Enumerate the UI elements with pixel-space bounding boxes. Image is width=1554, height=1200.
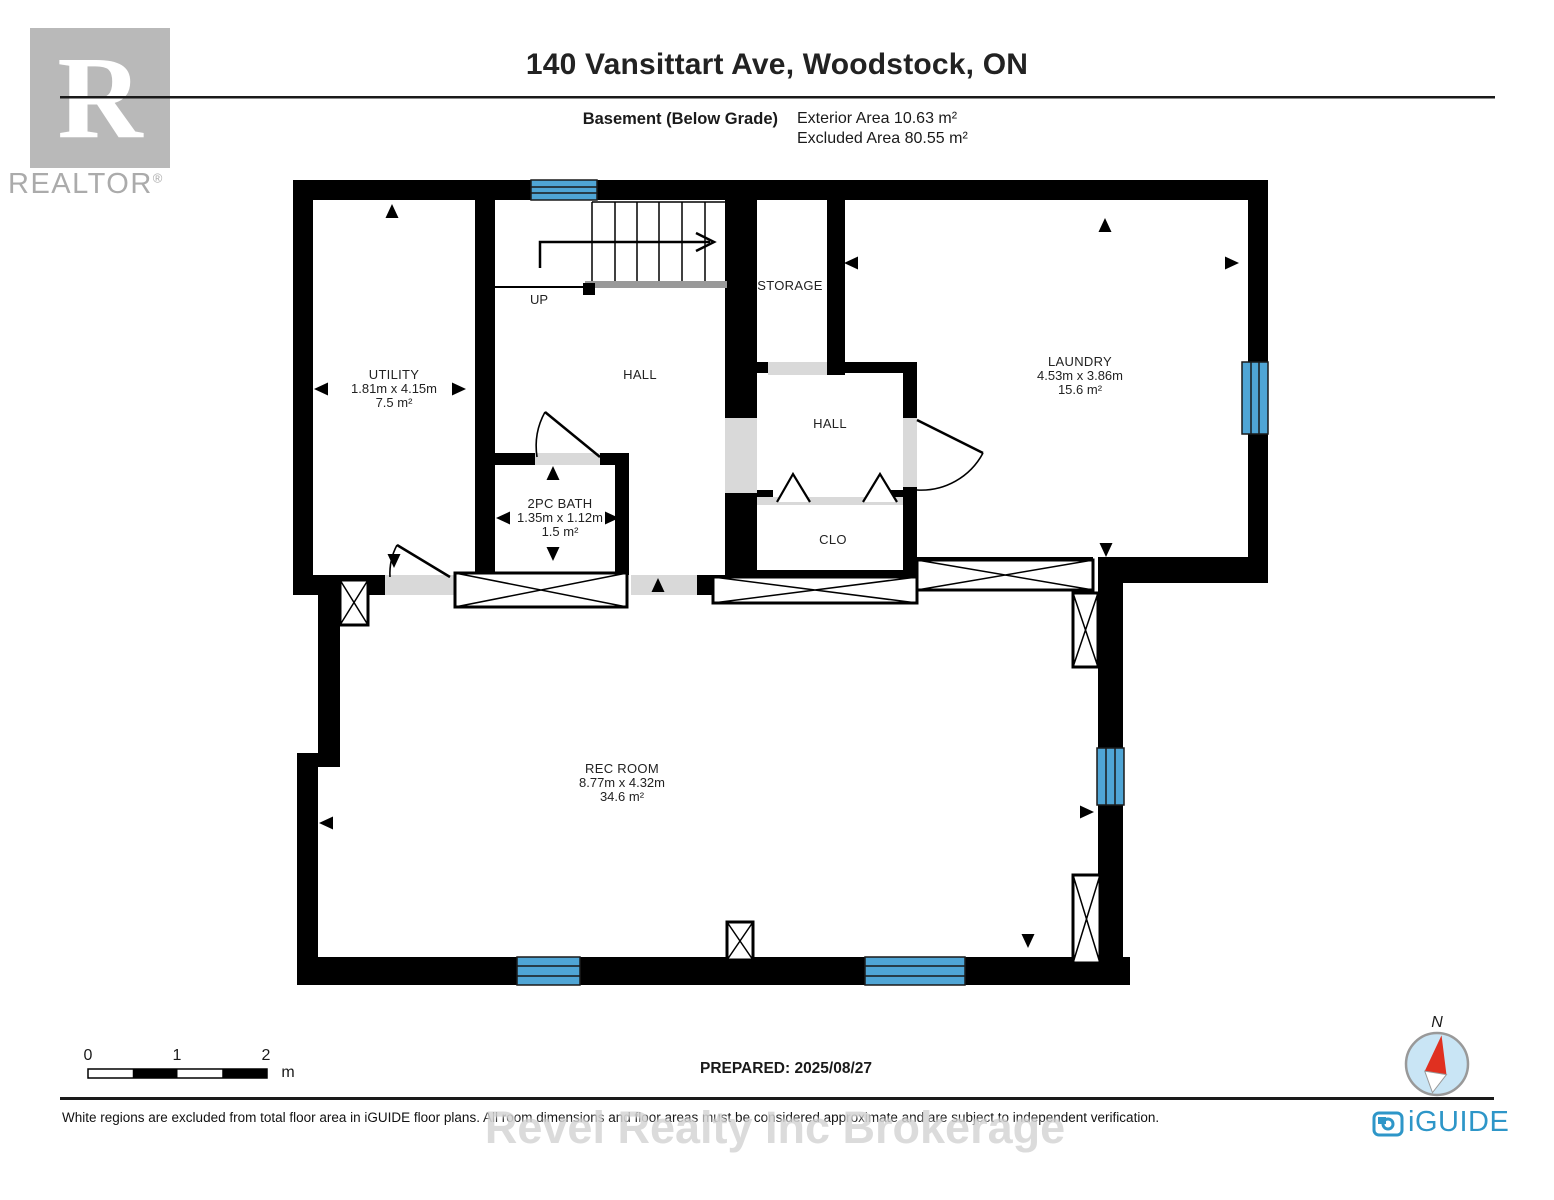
header-divider bbox=[60, 96, 1495, 99]
page-title: 140 Vansittart Ave, Woodstock, ON bbox=[0, 58, 1554, 72]
excluded-hatch-areas bbox=[340, 560, 1100, 963]
stair-direction-arrow bbox=[540, 233, 714, 268]
floorplan-page: { "header": { "title": "140 Vansittart A… bbox=[0, 0, 1554, 1200]
footer-divider bbox=[60, 1097, 1494, 1100]
scale-tick-2: 2 bbox=[262, 1047, 271, 1065]
scale-unit: m bbox=[281, 1064, 294, 1082]
scale-bar bbox=[88, 1069, 267, 1078]
iguide-wordmark: iGUIDE bbox=[1408, 1106, 1509, 1139]
exterior-area-text: Exterior Area 10.63 m² bbox=[797, 110, 957, 128]
wall-openings bbox=[385, 362, 917, 595]
room-label-closet: CLO bbox=[819, 533, 847, 547]
scale-tick-1: 1 bbox=[173, 1047, 182, 1065]
floor-label: Basement (Below Grade) bbox=[480, 110, 778, 129]
floorplan-drawing bbox=[0, 0, 1554, 1200]
brokerage-watermark: Revel Realty Inc Brokerage bbox=[485, 1102, 1065, 1154]
room-label-laundry: LAUNDRY 4.53m x 3.86m 15.6 m² bbox=[1037, 355, 1123, 397]
north-label: N bbox=[1431, 1014, 1443, 1032]
prepared-date: PREPARED: 2025/08/27 bbox=[700, 1060, 872, 1078]
registered-icon: ® bbox=[153, 170, 164, 185]
stair-landing-edge bbox=[585, 281, 727, 288]
hatch-x-lines bbox=[340, 560, 1100, 963]
scale-tick-0: 0 bbox=[84, 1047, 93, 1065]
room-label-hall-center: HALL bbox=[813, 417, 847, 431]
stairs-up-label: UP bbox=[530, 293, 548, 307]
staircase bbox=[495, 202, 727, 295]
iguide-logo: iGUIDE bbox=[1372, 1106, 1509, 1139]
excluded-area-text: Excluded Area 80.55 m² bbox=[797, 130, 968, 148]
realtor-wordmark: REALTOR® bbox=[8, 168, 164, 201]
room-label-rec-room: REC ROOM 8.77m x 4.32m 34.6 m² bbox=[579, 762, 665, 804]
room-label-utility: UTILITY 1.81m x 4.15m 7.5 m² bbox=[351, 368, 437, 410]
room-label-hall-upper: HALL bbox=[623, 368, 657, 382]
room-label-storage: STORAGE bbox=[757, 279, 822, 293]
iguide-camera-icon bbox=[1372, 1109, 1404, 1137]
compass-icon bbox=[1406, 1033, 1468, 1095]
room-label-bath: 2PC BATH 1.35m x 1.12m 1.5 m² bbox=[517, 497, 603, 539]
